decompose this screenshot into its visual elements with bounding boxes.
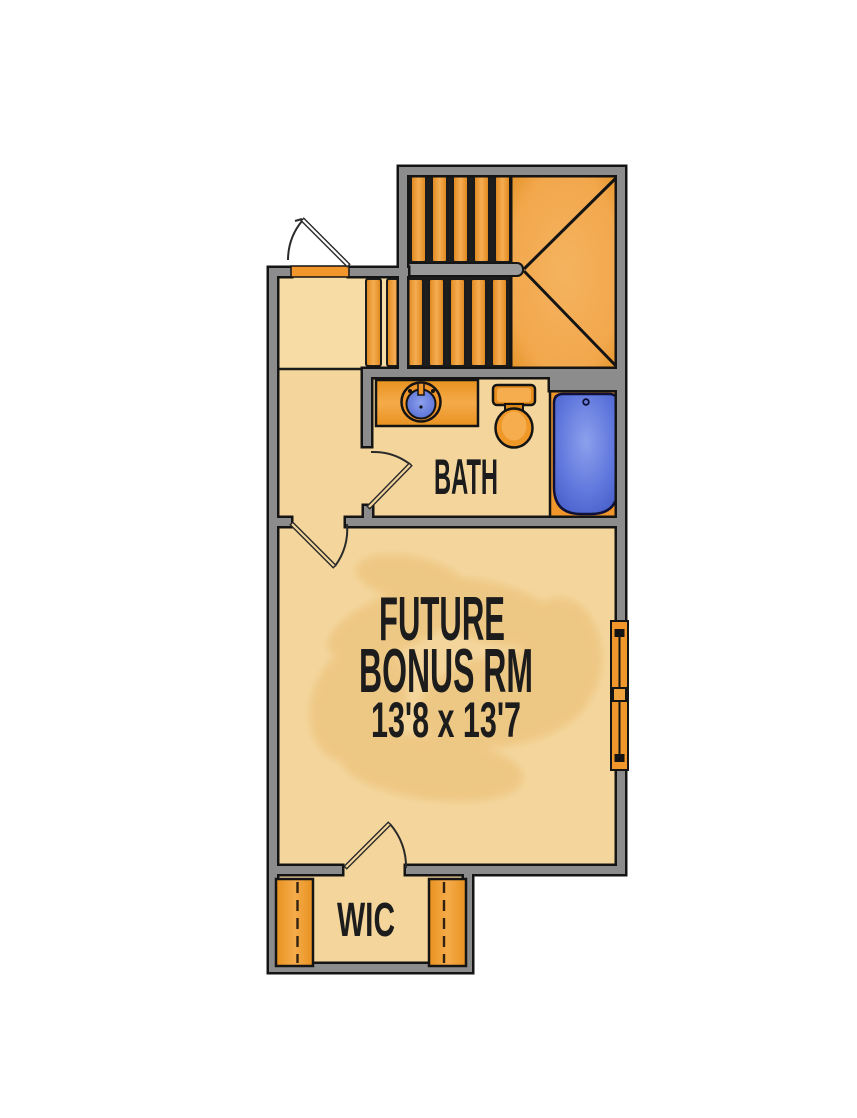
- stair-tread: [471, 279, 486, 366]
- floor-stair-landing-hall: [272, 271, 402, 369]
- window-cap-bottom: [615, 754, 625, 762]
- sink-handle-left: [408, 389, 412, 393]
- stair-tread: [453, 176, 468, 262]
- floor-plan: BATH FUTURE BONUS RM 13'8 x 13'7 WIC: [0, 0, 857, 1118]
- sink-handle-right: [431, 389, 435, 393]
- bonus-room-window: [611, 621, 628, 770]
- stair-treads-upper-flight: [411, 176, 510, 262]
- vanity-sink: [376, 380, 478, 426]
- stair-tread: [474, 176, 489, 262]
- stair-tread: [411, 176, 426, 262]
- stair-tread: [492, 279, 507, 366]
- toilet-tank-inner: [497, 388, 531, 402]
- toilet-seat: [502, 412, 527, 441]
- stair-tread: [408, 279, 423, 366]
- stair-tread: [432, 176, 447, 262]
- closet-rod-shelf-left: [276, 879, 313, 966]
- window-cap-top: [615, 629, 625, 637]
- tub-basin: [554, 394, 618, 514]
- window-mullion: [613, 688, 626, 701]
- stair-tread: [429, 279, 444, 366]
- floor-hall-lower: [272, 369, 373, 525]
- stair-flight-divider: [402, 263, 523, 276]
- closet-rod-shelf-right: [429, 879, 466, 966]
- stair-winder-landing: [511, 175, 619, 369]
- sink-faucet: [418, 383, 424, 395]
- toilet: [493, 385, 535, 448]
- bathtub: [550, 390, 622, 518]
- wic-label: WIC: [337, 894, 395, 947]
- bonus-room-dimensions: 13'8 x 13'7: [371, 692, 521, 748]
- stair-treads-lower-flight: [366, 279, 507, 366]
- stair-tread: [366, 279, 381, 366]
- stair-tread: [495, 176, 510, 262]
- bath-label: BATH: [434, 449, 498, 505]
- sink-drain: [419, 405, 422, 408]
- entry-door-threshold: [291, 266, 349, 277]
- stair-tread: [450, 279, 465, 366]
